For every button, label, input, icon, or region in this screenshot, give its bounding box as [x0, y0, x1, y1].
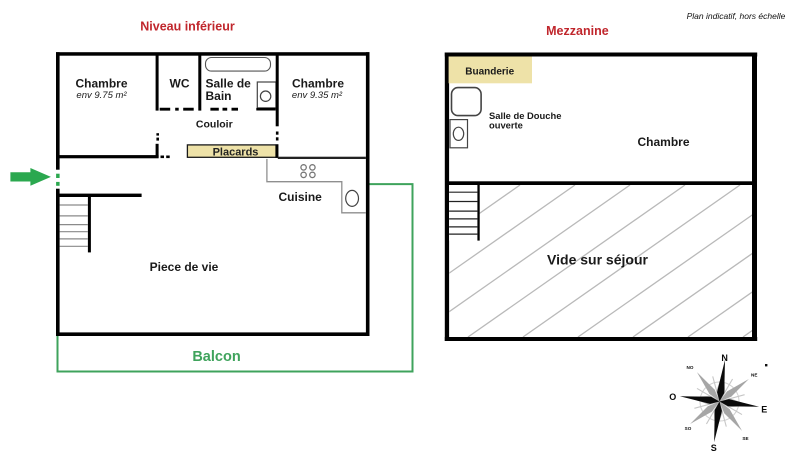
svg-text:Cuisine: Cuisine [279, 190, 323, 204]
svg-text:Chambre: Chambre [637, 135, 689, 149]
svg-text:env 9.35 m²: env 9.35 m² [292, 90, 343, 101]
svg-text:Mezzanine: Mezzanine [546, 24, 609, 38]
svg-text:O: O [669, 392, 676, 402]
svg-text:WC: WC [170, 77, 190, 91]
svg-text:ouverte: ouverte [489, 120, 523, 131]
svg-text:E: E [761, 405, 767, 415]
svg-text:Vide sur séjour: Vide sur séjour [547, 252, 648, 268]
svg-text:Couloir: Couloir [196, 118, 233, 130]
svg-text:Balcon: Balcon [192, 349, 240, 365]
svg-text:NO: NO [687, 365, 694, 370]
svg-text:env 9.75 m²: env 9.75 m² [76, 90, 127, 101]
svg-text:Bain: Bain [206, 89, 232, 103]
svg-text:Chambre: Chambre [75, 77, 127, 91]
svg-text:SO: SO [685, 426, 692, 431]
svg-text:SE: SE [742, 436, 748, 441]
svg-text:Chambre: Chambre [292, 76, 344, 90]
svg-text:N: N [721, 353, 728, 363]
svg-text:S: S [711, 443, 717, 453]
svg-text:Placards: Placards [213, 146, 259, 158]
svg-text:NE: NE [751, 373, 757, 378]
svg-text:Niveau inférieur: Niveau inférieur [140, 20, 235, 34]
svg-text:Plan indicatif, hors échelle: Plan indicatif, hors échelle [687, 11, 786, 21]
svg-text:Buanderie: Buanderie [465, 67, 514, 78]
svg-text:Piece de vie: Piece de vie [150, 260, 219, 274]
